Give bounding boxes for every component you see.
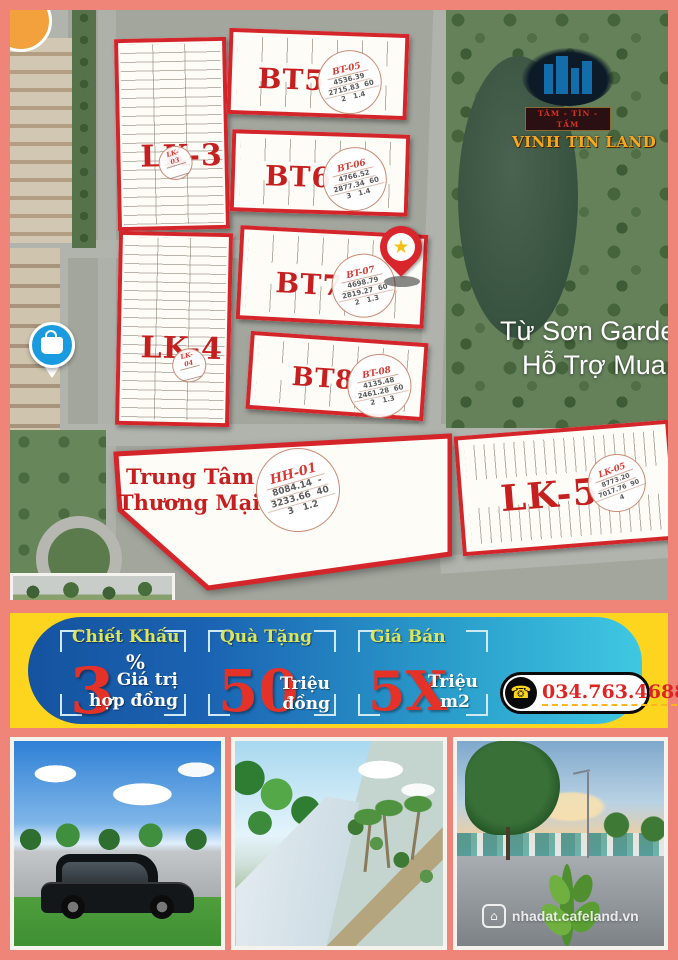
offer-title: Quà Tặng bbox=[220, 627, 312, 647]
photo-sunset-street: ⌂ nhadat.cafeland.vn bbox=[453, 737, 668, 950]
promo-panel: Chiết Khấu 3 % Giá trị hợp đồng Quà Tặng… bbox=[28, 617, 642, 724]
plot-grid bbox=[120, 43, 224, 225]
photo-lake-walkway bbox=[231, 737, 446, 950]
offer-title: Chiết Khấu bbox=[72, 627, 179, 647]
shopping-bag-icon bbox=[41, 337, 63, 354]
pin-shadow bbox=[384, 276, 420, 287]
logo-skyline-icon bbox=[522, 48, 614, 106]
block-hh01: Trung Tâm Thương Mại HH-01 8084.14 - 323… bbox=[100, 430, 452, 592]
offer-discount: Chiết Khấu 3 % Giá trị hợp đồng bbox=[60, 630, 186, 716]
company-logo: TÂM - TÍN - TẦM VINH TIN LAND bbox=[512, 48, 624, 151]
phone-contact-button[interactable]: ☎ 034.763.4688 bbox=[500, 672, 650, 714]
bracket-corner bbox=[314, 630, 336, 652]
offer-caption-line2: m2 bbox=[440, 692, 470, 712]
photo-gallery: ⌂ nhadat.cafeland.vn bbox=[10, 737, 668, 950]
offer-gift: Quà Tặng 50 Triệu đồng bbox=[208, 630, 336, 716]
location-pin-icon: ★ bbox=[378, 226, 424, 288]
offer-caption-line1: Triệu bbox=[428, 672, 478, 692]
watermark-text: nhadat.cafeland.vn bbox=[512, 908, 639, 924]
offer-title: Giá Bán bbox=[370, 627, 446, 647]
block-bt5: BT5 BT-05 4536.39 2715.83 60 2 1.4 bbox=[227, 28, 410, 120]
block-lk5: LK-5 LK-05 8773.20 7017.76 90 4 bbox=[454, 420, 668, 557]
partial-photo-strip bbox=[10, 573, 175, 600]
block-label-bt5: BT5 bbox=[257, 65, 325, 95]
block-bt6: BT6 BT-06 4766.52 2877.34 60 3 1.4 bbox=[230, 129, 410, 217]
logo-building bbox=[571, 68, 579, 94]
phone-icon: ☎ bbox=[510, 685, 531, 702]
hh01-label-line1: Trung Tâm bbox=[126, 464, 254, 489]
map-place-name-line1: Từ Sơn Garde bbox=[500, 316, 668, 347]
phone-number: 034.763.4688 bbox=[542, 681, 678, 706]
tree-row bbox=[72, 10, 96, 248]
block-label-lk5: LK-5 bbox=[499, 474, 600, 518]
watermark: ⌂ nhadat.cafeland.vn bbox=[457, 904, 664, 928]
shopping-poi-pin-icon bbox=[24, 322, 80, 392]
logo-building bbox=[556, 56, 568, 94]
home-search-icon: ⌂ bbox=[482, 904, 506, 928]
logo-name: VINH TIN LAND bbox=[512, 133, 624, 151]
offer-caption-line2: đồng bbox=[283, 694, 330, 714]
promo-banner: Chiết Khấu 3 % Giá trị hợp đồng Quà Tặng… bbox=[10, 613, 668, 728]
block-bt8: BT8 BT-08 4135.48 2461.28 60 2 1.3 bbox=[245, 331, 428, 421]
car-wheel bbox=[61, 895, 86, 920]
plot-grid bbox=[121, 237, 227, 421]
hh01-label-line2: Thương Mại bbox=[118, 490, 260, 515]
pin-inner-circle: ★ bbox=[387, 233, 415, 261]
block-label-bt8: BT8 bbox=[291, 364, 355, 394]
master-plan-map: LK-3 LK-03 LK-4 LK-04 BT5 BT-05 4536.39 … bbox=[10, 10, 668, 600]
offer-caption-line1: Triệu bbox=[280, 674, 330, 694]
star-icon: ★ bbox=[392, 238, 409, 257]
block-lk4: LK-4 LK-04 bbox=[115, 231, 233, 427]
logo-building bbox=[544, 64, 553, 94]
offer-caption-line2: hợp đồng bbox=[89, 691, 178, 711]
offer-price: Giá Bán 5X Triệu m2 bbox=[358, 630, 488, 716]
block-lk3: LK-3 LK-03 bbox=[114, 37, 230, 231]
foreground-plant bbox=[544, 844, 598, 947]
offer-caption-line1: Giá trị bbox=[117, 670, 178, 690]
shore-shrubs bbox=[235, 741, 442, 946]
phone-icon-circle: ☎ bbox=[505, 677, 537, 709]
photo-street-suv bbox=[10, 737, 225, 950]
car-wheel bbox=[150, 895, 175, 920]
suv-car bbox=[41, 854, 194, 920]
logo-tagline: TÂM - TÍN - TẦM bbox=[525, 107, 611, 131]
bracket-corner bbox=[466, 630, 488, 652]
housing-area bbox=[10, 38, 72, 243]
small-tree bbox=[602, 811, 631, 840]
map-place-name-line2: Hỗ Trợ Mua B bbox=[522, 350, 668, 381]
logo-building bbox=[582, 61, 592, 94]
tree-trunk bbox=[506, 827, 510, 860]
